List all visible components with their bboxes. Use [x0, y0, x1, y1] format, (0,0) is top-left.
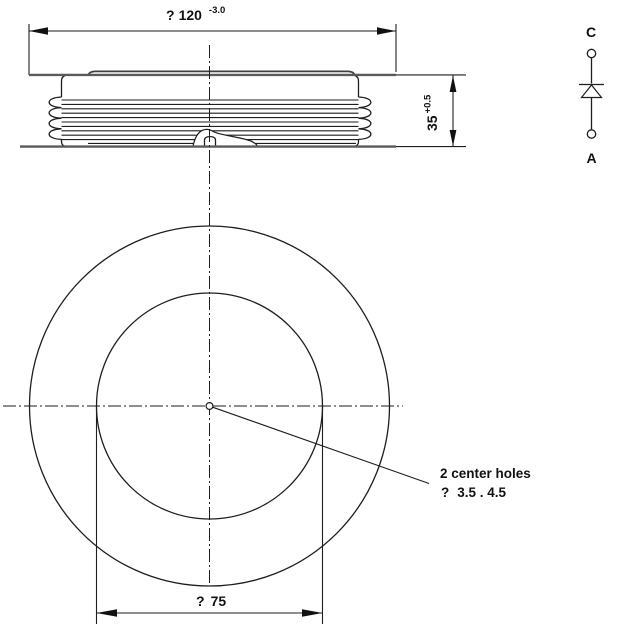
- center-hole: [206, 403, 213, 410]
- side-view: ?120-3.0: [20, 5, 466, 147]
- arrowhead-right: [377, 27, 396, 34]
- drawing-svg: ?120-3.0: [0, 0, 624, 634]
- note-line-2: ?3.5 . 4.5: [441, 485, 507, 500]
- cooling-fins-right: [359, 97, 371, 139]
- diode-symbol: C A: [579, 24, 604, 166]
- diameter-value: 120: [179, 7, 203, 23]
- device-outline: [20, 71, 466, 146]
- cathode-terminal-circle: [587, 49, 595, 57]
- arrowhead-right: [302, 609, 323, 616]
- arrowhead-left: [29, 27, 48, 34]
- diameter-symbol: ?: [166, 7, 175, 23]
- leader-line: [213, 407, 429, 483]
- hole-size-value: 3.5 . 4.5: [457, 485, 506, 500]
- technical-drawing-page: ?120-3.0: [0, 0, 624, 634]
- body-edge-right-top: [355, 76, 359, 98]
- height-value: 35: [424, 115, 440, 131]
- diode-triangle: [582, 85, 602, 98]
- dim-diameter-75-text: ?75: [196, 593, 226, 609]
- anode-terminal-circle: [587, 130, 595, 138]
- dim-height-35-text: 35+0.5: [423, 94, 441, 131]
- dim-height-35: 35+0.5: [423, 76, 457, 147]
- center-holes-note: 2 center holes ?3.5 . 4.5: [440, 466, 531, 500]
- cooling-fins-left: [49, 97, 61, 139]
- cathode-label: C: [586, 24, 596, 40]
- arrowhead-top: [450, 76, 457, 92]
- height-tolerance: +0.5: [423, 94, 434, 113]
- arrowhead-bottom: [450, 130, 457, 146]
- dim-diameter-120: ?120-3.0: [29, 5, 396, 75]
- arrowhead-left: [97, 609, 118, 616]
- diameter-value: 75: [211, 593, 227, 609]
- diameter-symbol: ?: [196, 593, 205, 609]
- anode-label: A: [587, 150, 597, 166]
- body-edge-left-top: [62, 76, 66, 98]
- dim-diameter-120-text: ?120-3.0: [166, 5, 225, 23]
- gate-lead-bump: [193, 129, 258, 146]
- note-line-1: 2 center holes: [440, 466, 531, 481]
- diameter-symbol: ?: [441, 485, 449, 500]
- diameter-tolerance: -3.0: [209, 5, 225, 16]
